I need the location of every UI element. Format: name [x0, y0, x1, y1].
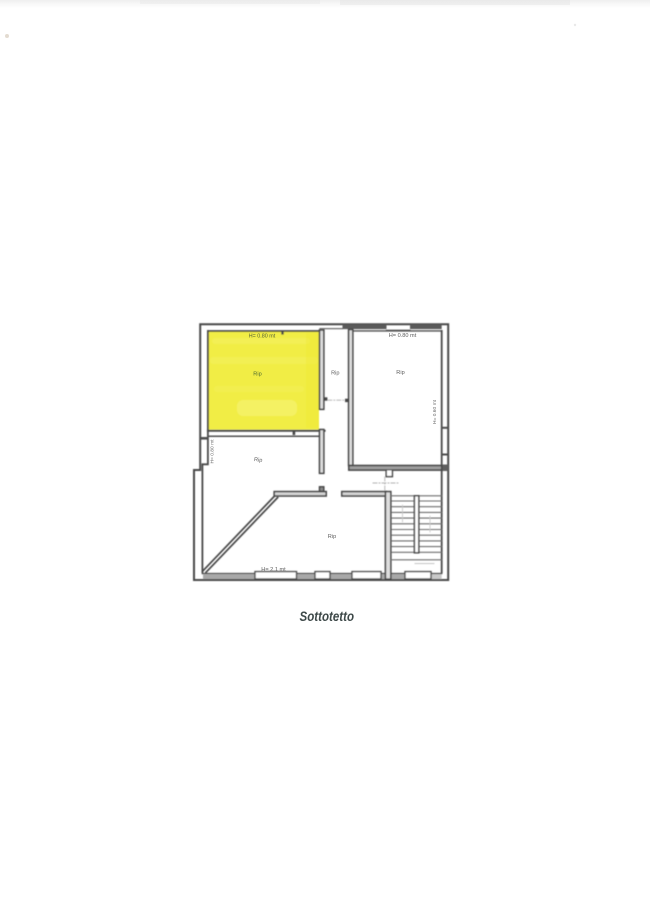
svg-text:Sottotetto: Sottotetto [300, 609, 355, 624]
svg-text:H= 0.60 mt: H= 0.60 mt [432, 399, 438, 424]
svg-text:H= 0.80 mt: H= 0.80 mt [249, 334, 276, 340]
svg-text:Rip: Rip [253, 372, 261, 378]
svg-text:Rip: Rip [328, 534, 336, 540]
svg-text:H= 0.80 mt: H= 0.80 mt [210, 439, 216, 464]
svg-text:Rip: Rip [254, 457, 263, 464]
svg-text:Rip: Rip [331, 371, 339, 377]
svg-text:Rip: Rip [396, 370, 404, 376]
svg-text:H= 2.1 mt: H= 2.1 mt [261, 567, 286, 573]
svg-text:H= 0.80 mt: H= 0.80 mt [389, 333, 417, 339]
